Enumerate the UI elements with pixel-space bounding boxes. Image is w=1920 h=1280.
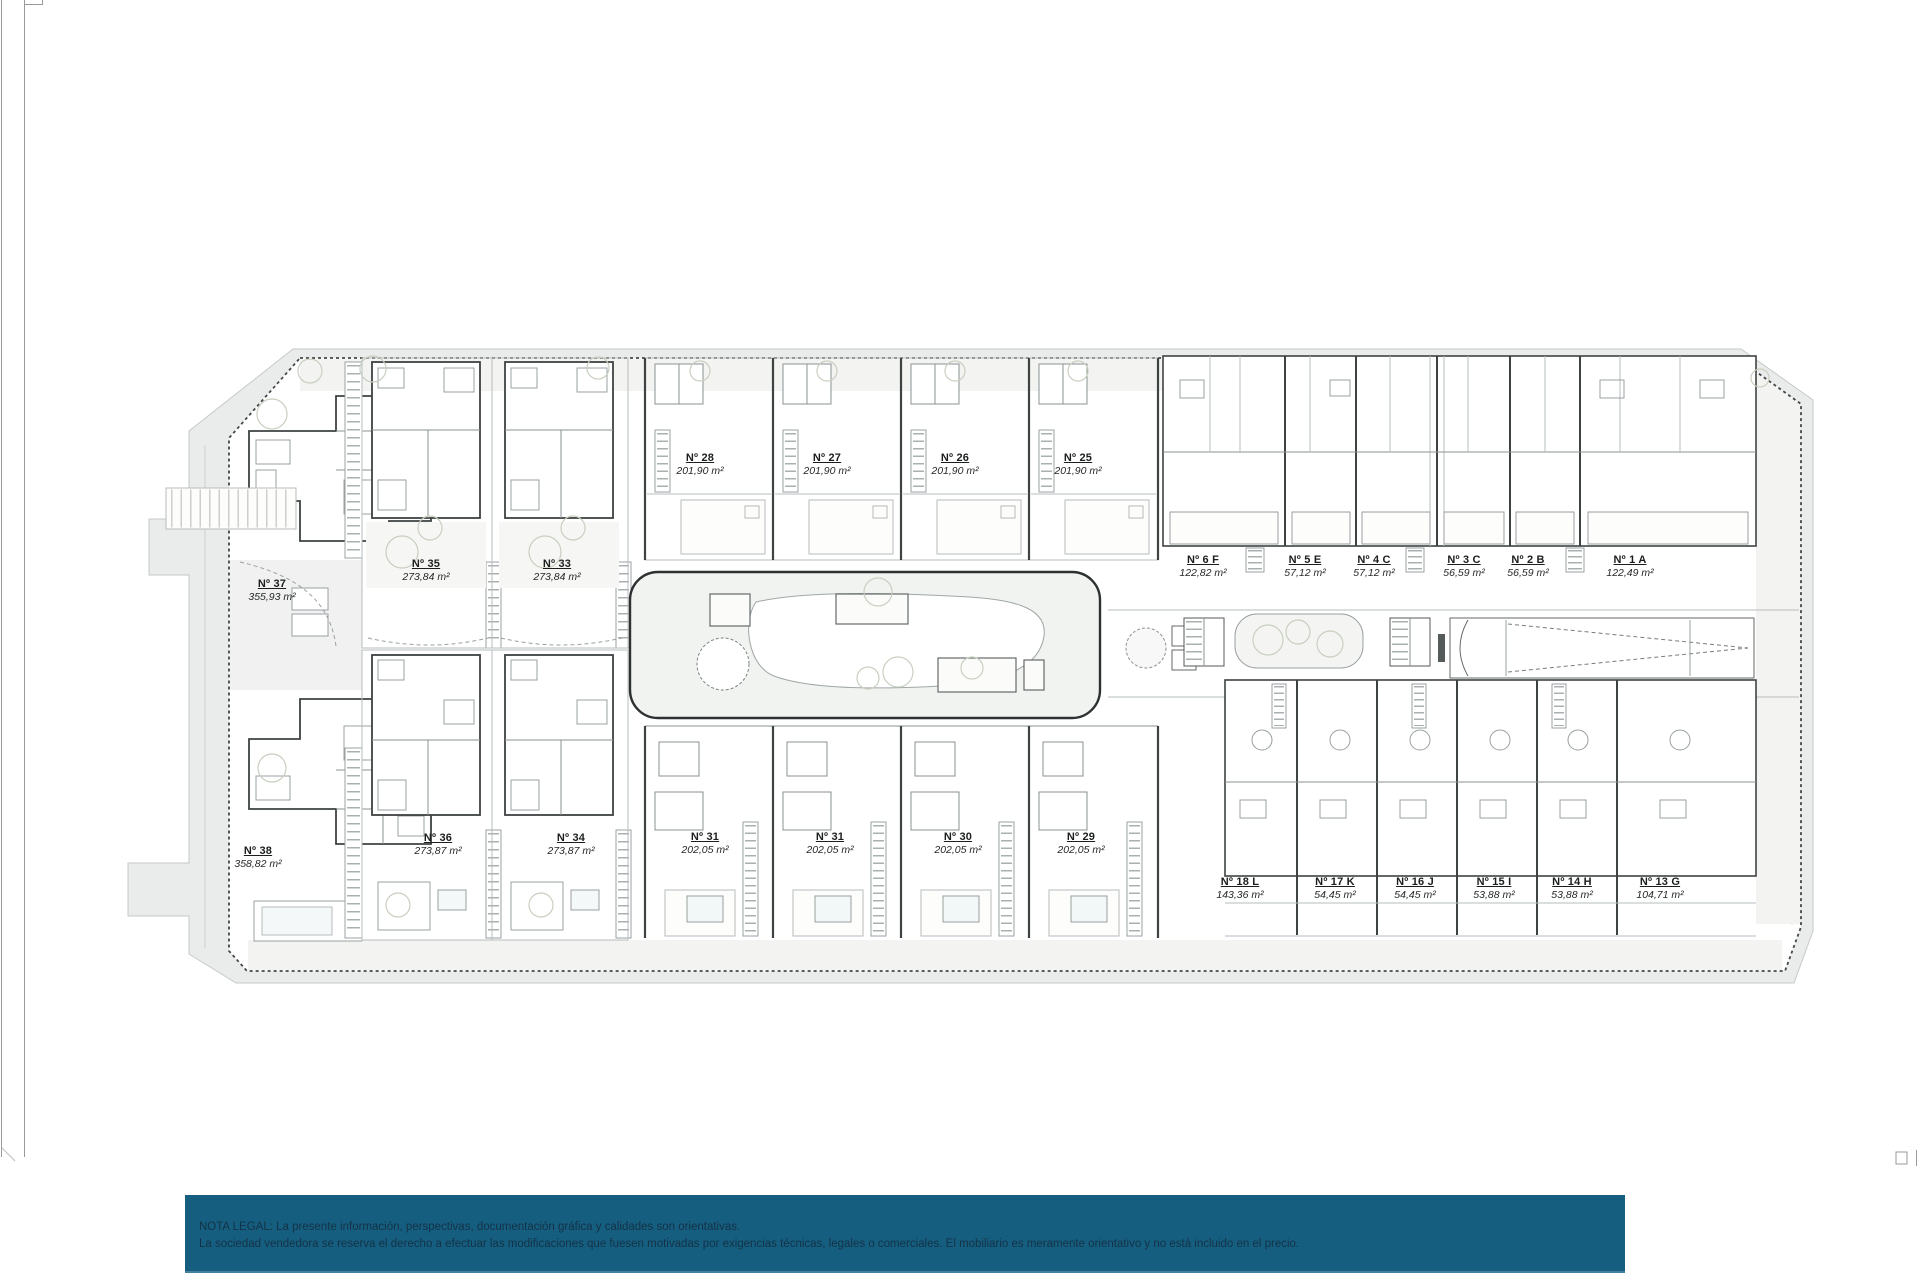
unit-label: Nº 17 K54,45 m² xyxy=(1314,876,1355,902)
turning-circle xyxy=(1126,628,1166,668)
unit-area: 201,90 m² xyxy=(1054,465,1101,478)
unit-label: Nº 16 J54,45 m² xyxy=(1394,876,1435,902)
unit-label: Nº 38358,82 m² xyxy=(234,845,281,871)
unit-number: Nº 2 B xyxy=(1507,554,1548,567)
unit-number: Nº 16 J xyxy=(1394,876,1435,889)
unit-number: Nº 18 L xyxy=(1216,876,1263,889)
unit-label: Nº 4 C57,12 m² xyxy=(1353,554,1394,580)
stair-core-b xyxy=(1390,618,1430,666)
unit-label: Nº 29202,05 m² xyxy=(1057,831,1104,857)
unit-number: Nº 4 C xyxy=(1353,554,1394,567)
unit-label: Nº 33273,84 m² xyxy=(533,558,580,584)
unit-number: Nº 38 xyxy=(234,845,281,858)
unit-number: Nº 31 xyxy=(681,831,728,844)
garden-island xyxy=(1235,614,1363,668)
unit-number: Nº 26 xyxy=(931,452,978,465)
unit-label: Nº 25201,90 m² xyxy=(1054,452,1101,478)
unit-label: Nº 15 I53,88 m² xyxy=(1473,876,1514,902)
unit-area: 57,12 m² xyxy=(1284,567,1325,580)
unit-number: Nº 37 xyxy=(248,578,295,591)
unit-number: Nº 15 I xyxy=(1473,876,1514,889)
unit-area: 273,84 m² xyxy=(533,571,580,584)
brochure-page: Nº 37355,93 m² Nº 38358,82 m² Nº 35273,8… xyxy=(0,0,1920,1280)
unit-area: 355,93 m² xyxy=(248,591,295,604)
unit-label: Nº 30202,05 m² xyxy=(934,831,981,857)
spa-circle xyxy=(697,638,749,690)
unit-number: Nº 17 K xyxy=(1314,876,1355,889)
site-plan-drawing xyxy=(0,0,1920,1280)
unit-label: Nº 34273,87 m² xyxy=(547,832,594,858)
unit-label: Nº 2 B56,59 m² xyxy=(1507,554,1548,580)
unit-area: 273,87 m² xyxy=(547,845,594,858)
parking-ramp xyxy=(1450,618,1754,678)
unit-number: Nº 6 F xyxy=(1179,554,1226,567)
unit-area: 273,87 m² xyxy=(414,845,461,858)
unit-number: Nº 30 xyxy=(934,831,981,844)
unit-label: Nº 3 C56,59 m² xyxy=(1443,554,1484,580)
unit-area: 201,90 m² xyxy=(931,465,978,478)
unit-number: Nº 27 xyxy=(803,452,850,465)
unit-number: Nº 25 xyxy=(1054,452,1101,465)
unit-label: Nº 6 F122,82 m² xyxy=(1179,554,1226,580)
unit-number: Nº 1 A xyxy=(1606,554,1653,567)
unit-number: Nº 33 xyxy=(533,558,580,571)
unit-number: Nº 29 xyxy=(1057,831,1104,844)
unit-area: 202,05 m² xyxy=(934,844,981,857)
unit-number: Nº 34 xyxy=(547,832,594,845)
stair-core-a xyxy=(1184,618,1224,666)
unit-label: Nº 35273,84 m² xyxy=(402,558,449,584)
unit-area: 202,05 m² xyxy=(1057,844,1104,857)
unit-area: 54,45 m² xyxy=(1314,889,1355,902)
unit-label: Nº 36273,87 m² xyxy=(414,832,461,858)
unit-label: Nº 18 L143,36 m² xyxy=(1216,876,1263,902)
unit-area: 143,36 m² xyxy=(1216,889,1263,902)
unit-area: 273,84 m² xyxy=(402,571,449,584)
unit-number: Nº 14 H xyxy=(1551,876,1592,889)
unit-area: 56,59 m² xyxy=(1443,567,1484,580)
unit-label: Nº 37355,93 m² xyxy=(248,578,295,604)
unit-label: Nº 31202,05 m² xyxy=(681,831,728,857)
legal-note-line1: NOTA LEGAL: La presente información, per… xyxy=(199,1219,1607,1236)
unit-label: Nº 31202,05 m² xyxy=(806,831,853,857)
unit-area: 104,71 m² xyxy=(1636,889,1683,902)
unit-number: Nº 5 E xyxy=(1284,554,1325,567)
unit-number: Nº 31 xyxy=(806,831,853,844)
unit-number: Nº 28 xyxy=(676,452,723,465)
unit-label: Nº 13 G104,71 m² xyxy=(1636,876,1683,902)
unit-area: 57,12 m² xyxy=(1353,567,1394,580)
unit-area: 202,05 m² xyxy=(806,844,853,857)
unit-label: Nº 14 H53,88 m² xyxy=(1551,876,1592,902)
unit-area: 202,05 m² xyxy=(681,844,728,857)
unit-area: 54,45 m² xyxy=(1394,889,1435,902)
unit-number: Nº 36 xyxy=(414,832,461,845)
unit-number: Nº 13 G xyxy=(1636,876,1683,889)
legal-note-line2: La sociedad vendedora se reserva el dere… xyxy=(199,1236,1607,1253)
unit-label: Nº 1 A122,49 m² xyxy=(1606,554,1653,580)
unit-label: Nº 5 E57,12 m² xyxy=(1284,554,1325,580)
unit-area: 53,88 m² xyxy=(1551,889,1592,902)
legal-footer: NOTA LEGAL: La presente información, per… xyxy=(185,1195,1625,1273)
unit-area: 122,49 m² xyxy=(1606,567,1653,580)
central-courtyard xyxy=(630,572,1100,718)
unit-area: 201,90 m² xyxy=(676,465,723,478)
unit-label: Nº 26201,90 m² xyxy=(931,452,978,478)
unit-area: 122,82 m² xyxy=(1179,567,1226,580)
unit-label: Nº 28201,90 m² xyxy=(676,452,723,478)
unit-area: 56,59 m² xyxy=(1507,567,1548,580)
unit-number: Nº 3 C xyxy=(1443,554,1484,567)
unit-area: 53,88 m² xyxy=(1473,889,1514,902)
apartments-top-slab xyxy=(1163,356,1756,572)
unit-number: Nº 35 xyxy=(402,558,449,571)
unit-label: Nº 27201,90 m² xyxy=(803,452,850,478)
unit-area: 201,90 m² xyxy=(803,465,850,478)
unit-area: 358,82 m² xyxy=(234,858,281,871)
